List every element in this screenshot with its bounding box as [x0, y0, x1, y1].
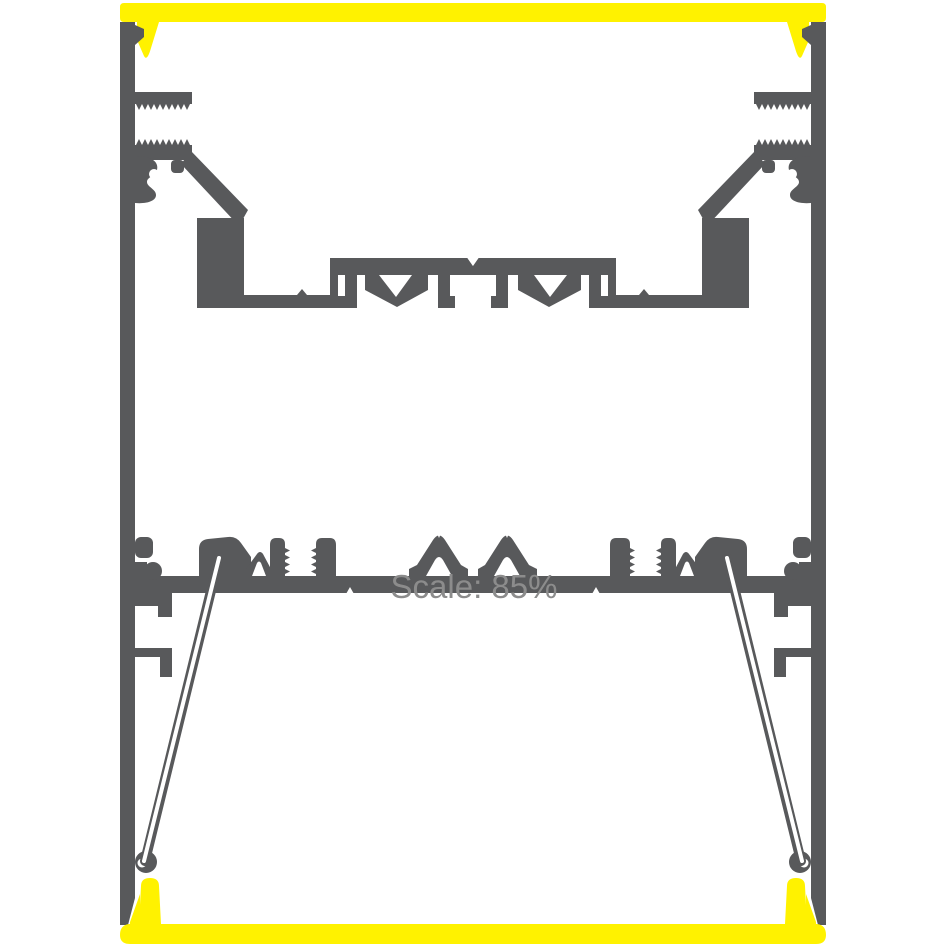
serrated-column-right — [311, 538, 336, 576]
slot-leg-outer — [337, 275, 357, 308]
led-profile-cross-section: Scale: 85% — [0, 0, 946, 948]
scale-watermark: Scale: 85% — [391, 568, 558, 605]
spring-anchor-block — [199, 537, 251, 576]
shelf-bump — [297, 289, 307, 295]
profile-drawing-canvas: Scale: 85% — [0, 0, 946, 948]
bottom-diffuser-clip-tab — [139, 878, 161, 924]
profile-right-half-mirror — [466, 3, 826, 944]
diagonal-strut — [181, 151, 248, 226]
top-diffuser-cover — [120, 3, 473, 58]
screw-boss-v — [365, 275, 428, 307]
clip-lobe-notch — [149, 169, 159, 179]
top-diffuser-strip — [120, 3, 473, 22]
slot-leg-inner — [438, 275, 455, 308]
serrated-column-left — [270, 538, 290, 576]
cavity-side-block — [197, 218, 244, 308]
wall-step-bracket — [135, 648, 172, 677]
mounting-platform — [330, 258, 473, 275]
aluminium-body — [120, 22, 480, 925]
wall-knob-upper — [135, 537, 153, 558]
below-rail-bracket — [135, 593, 172, 617]
bottom-diffuser-strip — [120, 924, 473, 944]
wall-knob-base — [135, 562, 147, 578]
clip-lobe — [135, 156, 157, 203]
cavity-shelf — [197, 295, 337, 308]
clip-nub — [171, 160, 184, 173]
serrated-tab-upper — [135, 92, 192, 110]
bottom-diffuser-cover — [120, 878, 473, 944]
side-wall — [120, 22, 135, 925]
profile-left-half — [120, 3, 480, 944]
